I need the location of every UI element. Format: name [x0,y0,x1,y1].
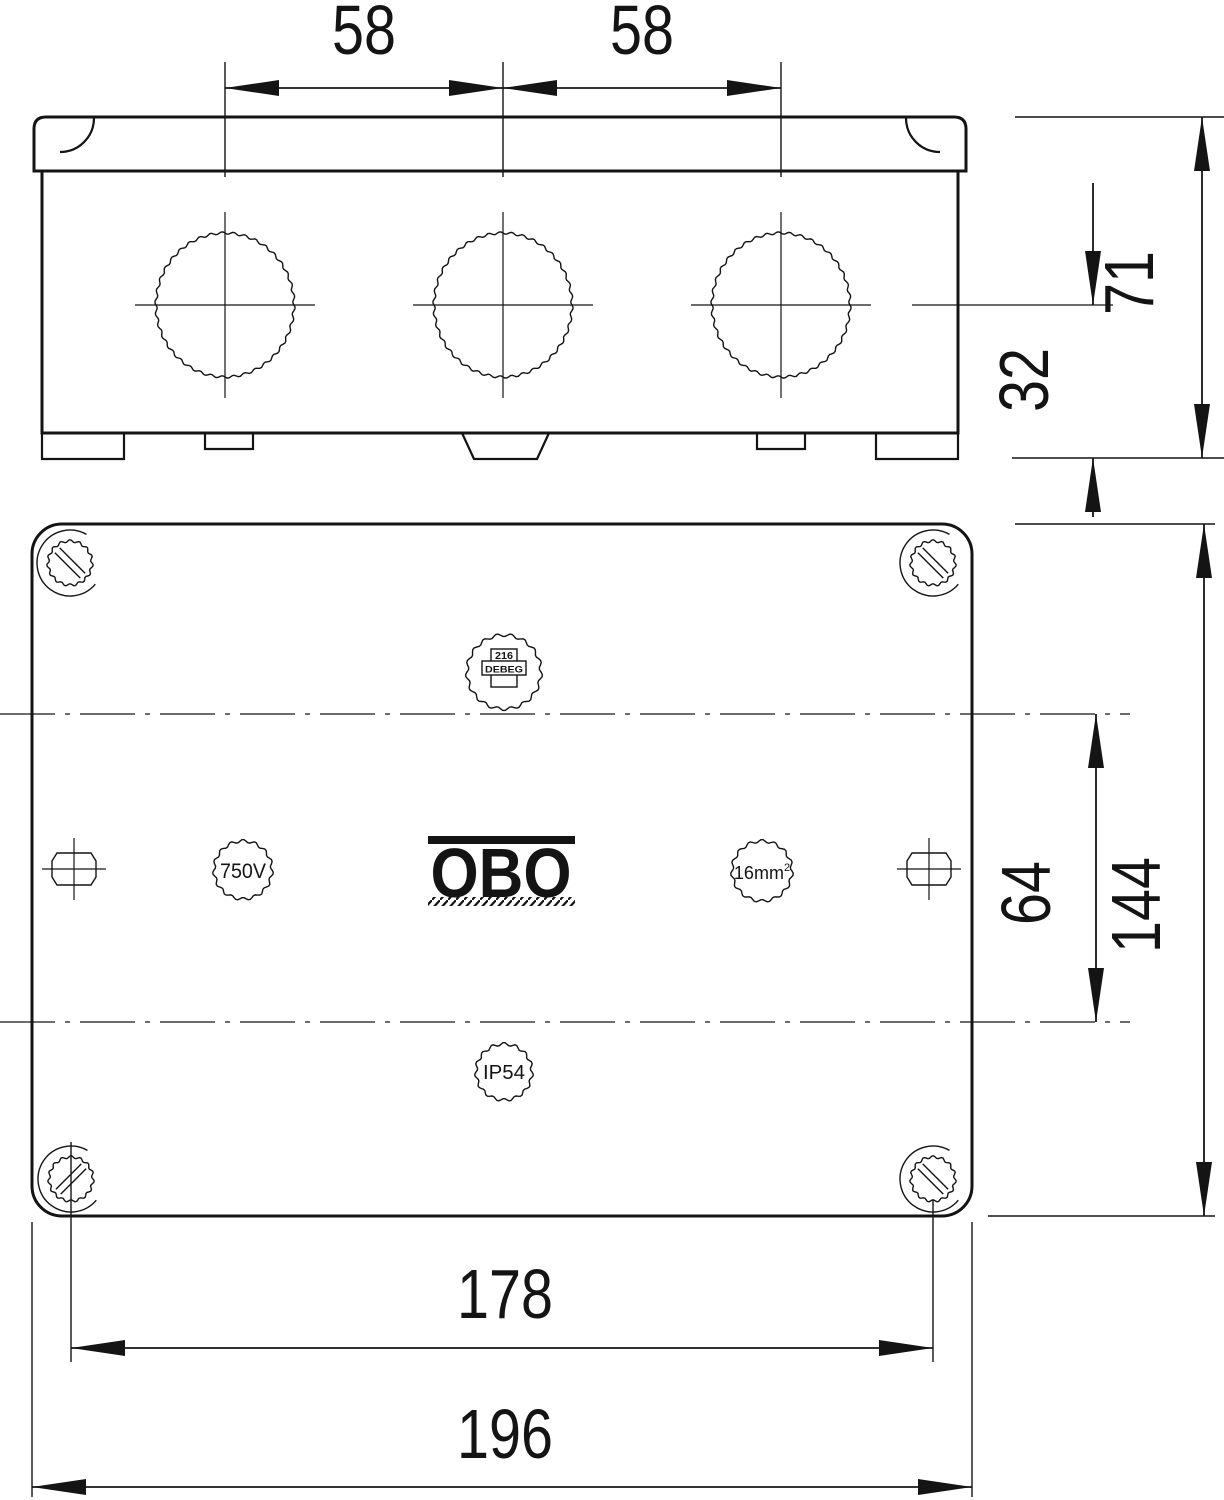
technical-drawing: 216DEBEG750V16mm2IP54OBO 585871321446417… [0,0,1224,1500]
screw-bottom-right-head [910,1156,956,1202]
dim-arrow [32,1479,86,1495]
dim-arrow [879,1340,933,1356]
dim-label-32: 32 [985,348,1063,412]
dim-arrow [918,1479,972,1495]
dim-arrow [503,80,557,96]
stamp-ip54-label: IP54 [483,1062,525,1084]
approval-badge-number: 216 [495,650,513,662]
obo-logo: OBO [428,834,575,912]
screw-top-right-head [910,540,956,586]
dim-arrow [449,80,503,96]
dim-label-58-left: 58 [332,0,396,69]
dimensions: 5858713214464178196 [32,0,1224,1497]
dim-arrow [1194,117,1210,171]
dim-arrow [71,1340,125,1356]
approval-badge-text: DEBEG [485,665,523,676]
tab-left [205,433,253,449]
screw-bottom-left [38,1146,96,1212]
dim-label-196: 196 [457,1395,553,1473]
dim-arrow [1085,458,1101,512]
screw-top-left [37,530,95,596]
stamp-16mm2: 16mm2 [731,840,793,902]
stamp-ip54: IP54 [475,1043,533,1101]
tab-right [757,433,805,449]
box-body-outline [42,171,958,433]
foot-left [42,433,124,459]
dim-arrow [1088,714,1104,768]
lid-corner-arc-left [60,118,94,152]
dim-label-178: 178 [457,1255,553,1333]
approval-badge: 216DEBEG [466,634,543,710]
dim-label-71: 71 [1090,251,1168,315]
foot-center-trapezoid [462,433,549,459]
stamp-16mm2-label: 16mm2 [734,862,790,883]
screw-top-right [900,530,958,596]
dim-arrow [1196,524,1212,578]
drawing-page: 216DEBEG750V16mm2IP54OBO 585871321446417… [0,0,1224,1500]
lid-outline [34,117,966,171]
dim-arrow [1194,404,1210,458]
top-view [34,117,1113,459]
dim-arrow [727,80,781,96]
stamp-750v: 750V [213,840,273,900]
obo-logo-hatched-bar [428,897,575,906]
lid-corner-arc-right [906,118,940,152]
screw-bottom-right [900,1146,958,1212]
dim-label-144: 144 [1097,857,1175,953]
dim-label-58-right: 58 [610,0,674,69]
foot-right [876,433,958,459]
screw-top-left-head [47,540,93,586]
plan-view: 216DEBEG750V16mm2IP54OBO [0,524,1130,1216]
stamp-750v-label: 750V [220,860,266,883]
dim-label-64: 64 [987,861,1065,925]
dim-arrow [1196,1162,1212,1216]
dim-arrow [225,80,279,96]
dim-arrow [1088,968,1104,1022]
